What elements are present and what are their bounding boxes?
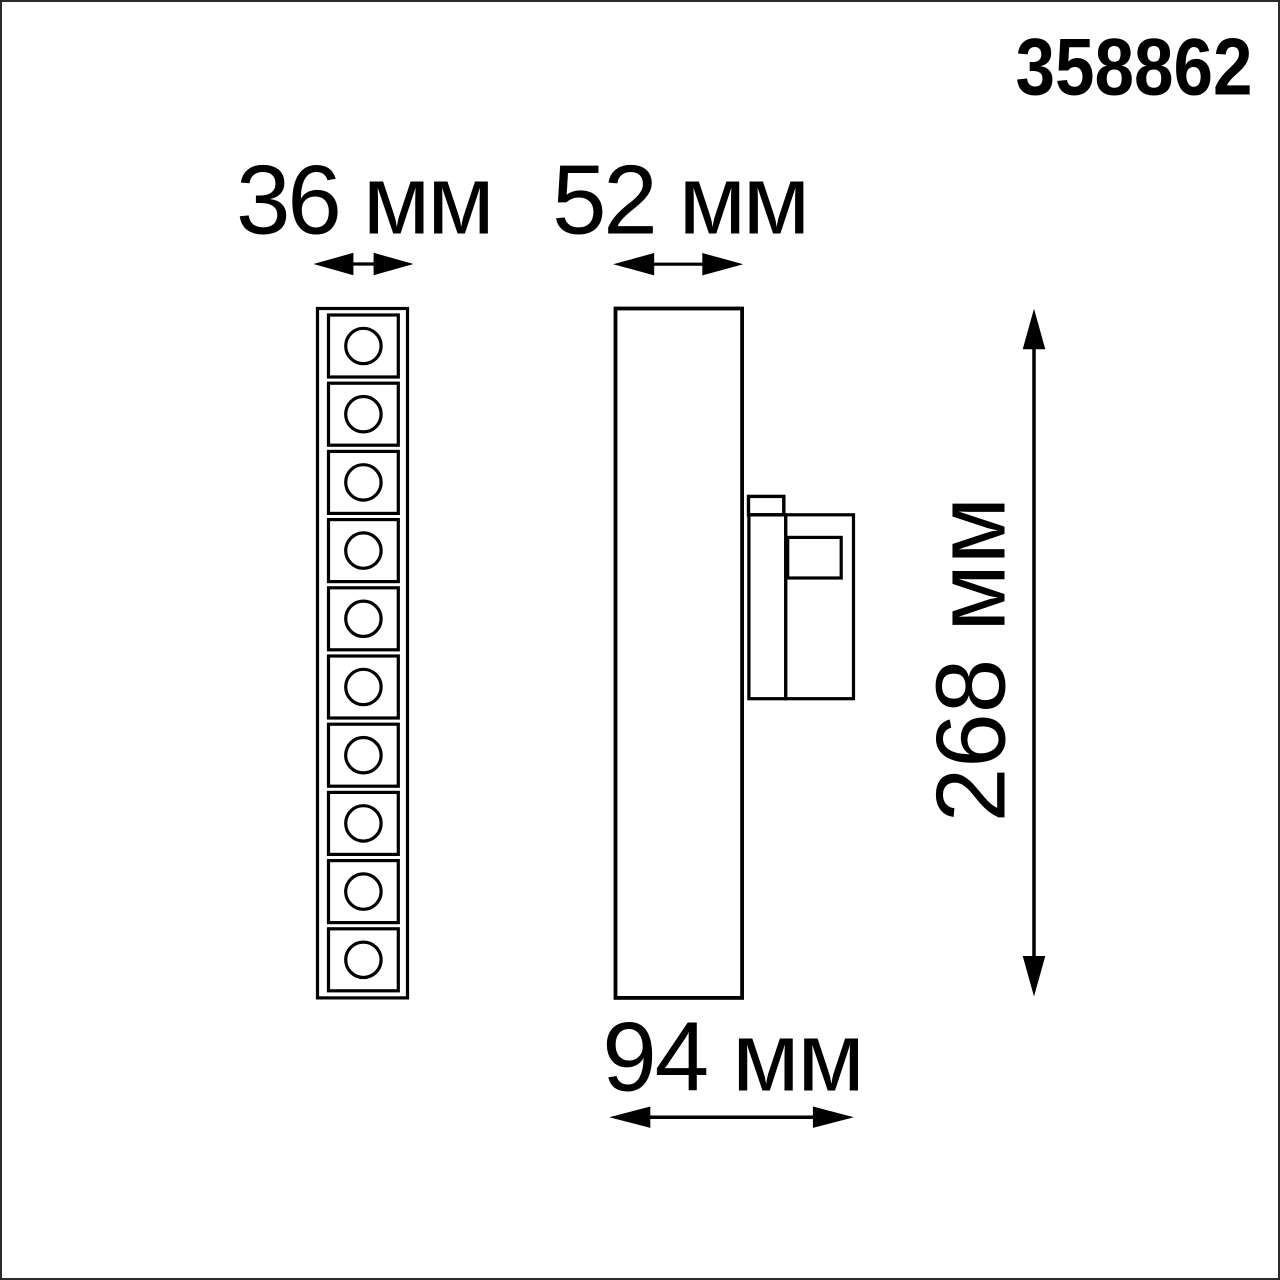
svg-text:94 мм: 94 мм <box>602 1002 862 1112</box>
svg-text:358862: 358862 <box>1016 23 1253 113</box>
svg-text:268 мм: 268 мм <box>916 497 1026 823</box>
svg-text:52 мм: 52 мм <box>552 144 807 254</box>
svg-text:36 мм: 36 мм <box>236 144 491 254</box>
